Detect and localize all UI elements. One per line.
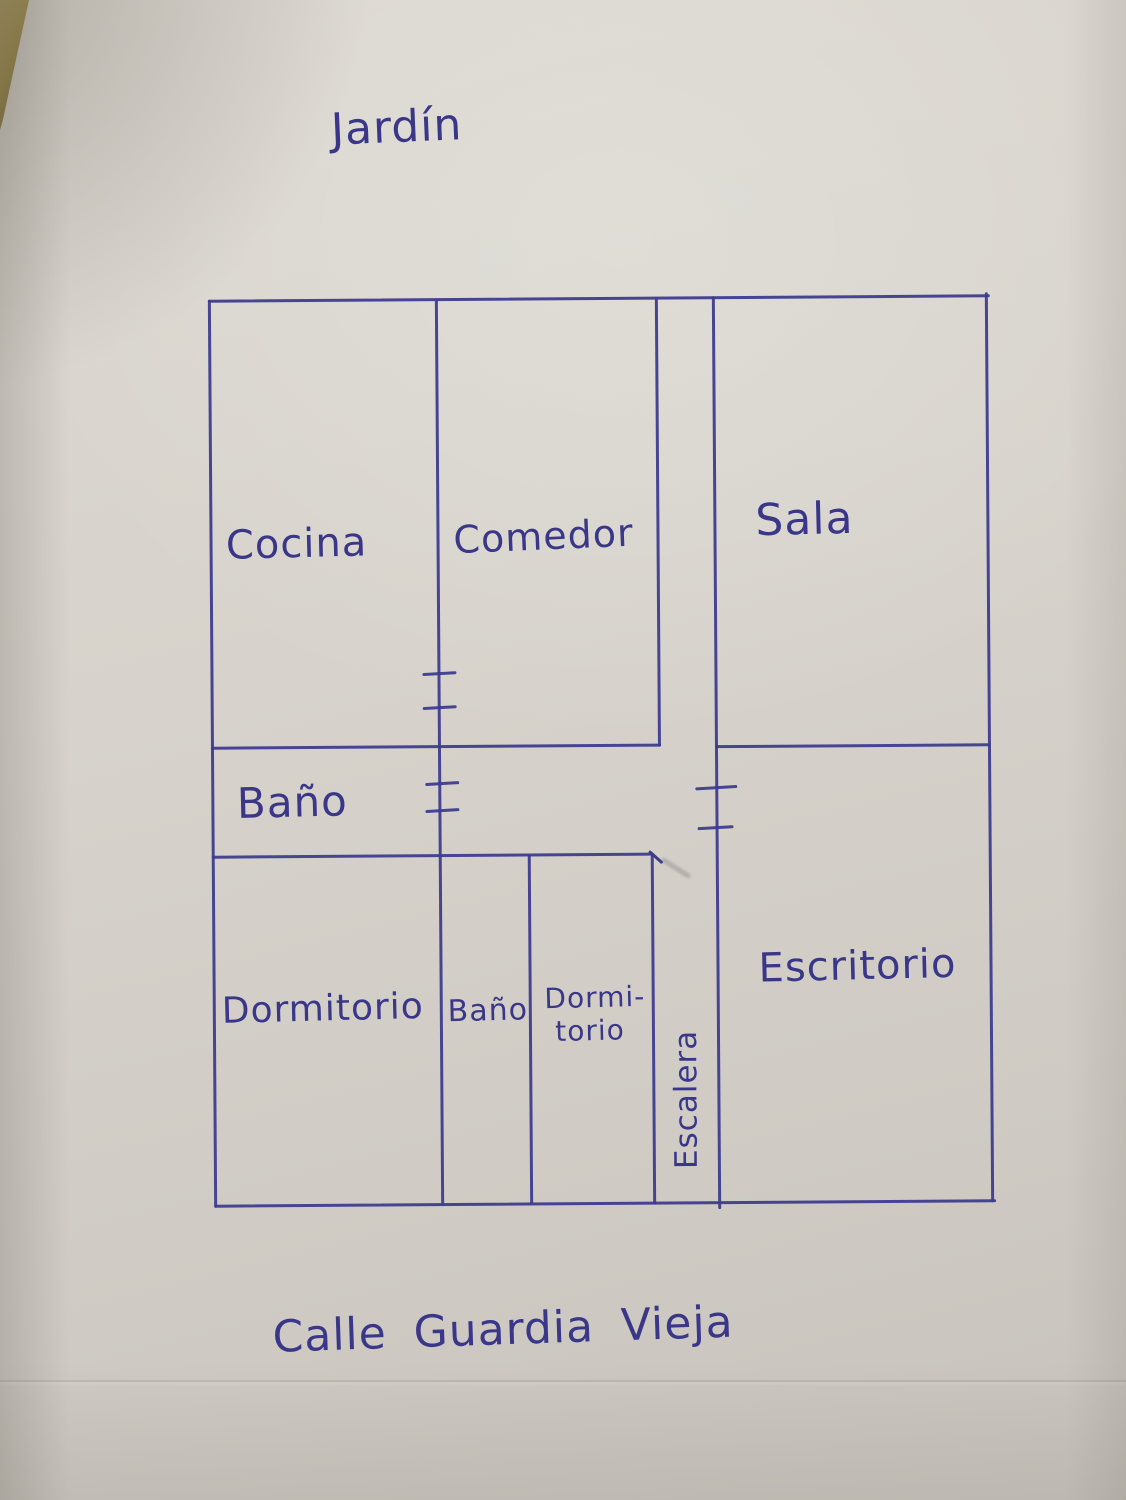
room-label-bano-inferior: Baño [447,992,528,1029]
door-mark-bano-2 [425,808,459,813]
garden-label: Jardín [330,99,463,155]
door-mark-bano-1 [425,781,459,786]
wall-cocina-bano-horizontal [211,744,661,750]
wall-outer-top [208,294,990,302]
wall-bano-dormitorios-horizontal [212,853,654,859]
wall-pasillo-dormitorio [651,853,656,1205]
pencil-smear [660,857,691,880]
wall-outer-left [208,300,217,1208]
wall-cocina-comedor-divider [435,300,444,1205]
room-label-dormitorio-secundario: Dormi- torio [544,980,646,1049]
room-label-comedor: Comedor [453,511,635,563]
room-label-sala: Sala [755,493,854,546]
wall-outer-bottom [214,1199,996,1207]
room-label-dormitorio-principal: Dormitorio [221,986,424,1032]
wall-outer-right [985,292,994,1202]
street-label: Calle Guardia Vieja [272,1297,735,1363]
wall-sala-escritorio-horizontal [715,743,991,748]
room-label-bano-superior: Baño [236,776,348,828]
room-label-dormitorio-secundario-line2: torio [555,1013,647,1048]
wall-comedor-pasillo [655,299,661,747]
wall-pasillo-sala [712,296,721,1209]
floor-plan: Jardín Cocina Comedor Sala Baño Dormitor… [0,0,1126,1500]
room-label-dormitorio-secundario-line1: Dormi- [544,980,646,1015]
room-label-cocina: Cocina [225,519,367,568]
paper-photo: Jardín Cocina Comedor Sala Baño Dormitor… [0,0,1126,1500]
wall-bano-dormitorio-divider [528,854,533,1204]
room-label-escalera: Escalera [668,1030,705,1169]
room-label-escritorio: Escritorio [758,941,957,992]
